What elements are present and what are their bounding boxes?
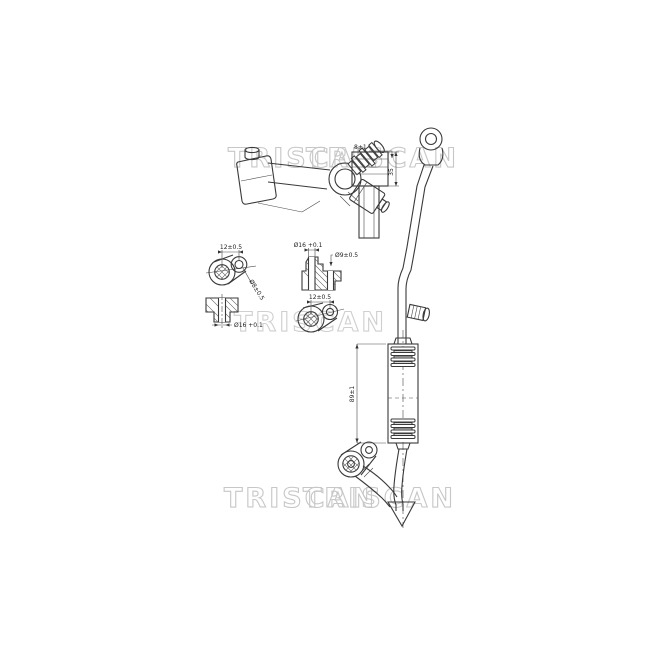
dimension-eyelet-hole: Ø8±0.5 bbox=[243, 268, 266, 302]
dimension-label: 8±1 bbox=[354, 144, 367, 151]
technical-drawing: TRISCAN TRISCAN TRISCAN TRISCAN TRISCAN bbox=[0, 0, 650, 650]
dimension-label: 12±0.5 bbox=[309, 294, 331, 301]
pipe-eyelet-bottom bbox=[338, 442, 377, 482]
bore-gap bbox=[309, 257, 316, 290]
bellows-bottom bbox=[391, 419, 415, 439]
dimension-label: Ø8±0.5 bbox=[247, 278, 265, 301]
watermark-row-bottom: TRISCAN TRISCAN bbox=[224, 483, 456, 514]
dimension-label: 89±1 bbox=[349, 386, 356, 403]
detail-section-top-view: Ø16 +0.1 Ø9±0.5 bbox=[294, 242, 360, 298]
dimension-label: Ø16 +0.1 bbox=[234, 322, 263, 329]
watermark-text: TRISCAN bbox=[303, 483, 456, 514]
bellows-top bbox=[391, 347, 415, 367]
hole-gap bbox=[328, 271, 334, 290]
pipe-run bbox=[398, 165, 424, 344]
detail-eyelet-top-view: 12±0.5 Ø8±0.5 bbox=[206, 244, 266, 302]
dimension-section-bore: Ø16 +0.1 bbox=[212, 322, 263, 329]
dimension-drier-length: 89±1 bbox=[349, 344, 386, 443]
dimension-label: Ø16 +0.1 bbox=[294, 242, 323, 249]
dimension-section-hole: Ø9±0.5 bbox=[329, 252, 358, 266]
dimension-section-bore: Ø16 +0.1 bbox=[294, 242, 323, 257]
dimension-label: 35 bbox=[388, 168, 395, 176]
dimension-label: Ø9±0.5 bbox=[335, 252, 358, 259]
drawing-page: TRISCAN TRISCAN TRISCAN TRISCAN TRISCAN bbox=[0, 0, 650, 650]
service-port-stub bbox=[407, 304, 430, 321]
dimension-label: 12±0.5 bbox=[220, 244, 242, 251]
